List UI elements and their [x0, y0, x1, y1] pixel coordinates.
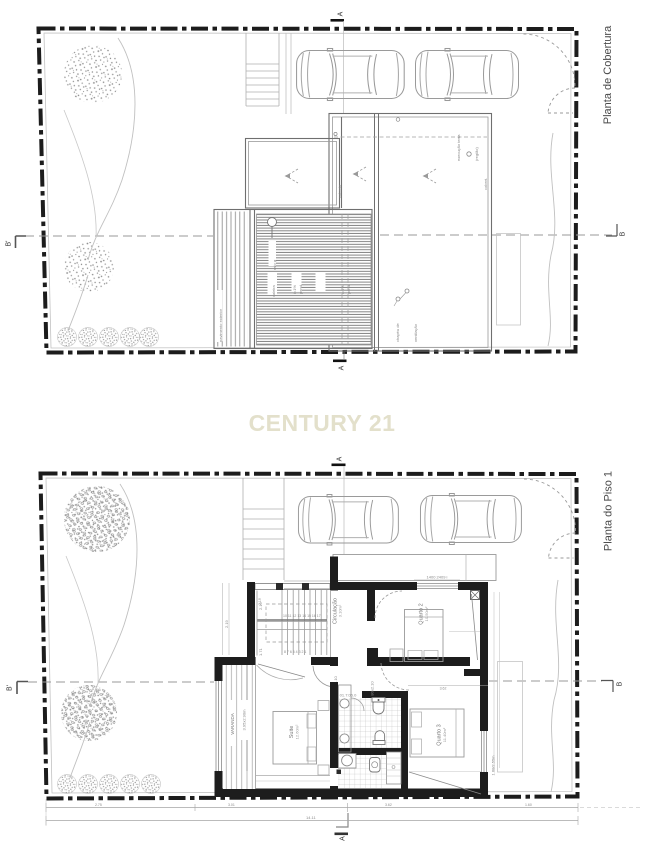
svg-text:3.10m²: 3.10m² — [337, 604, 342, 617]
svg-text:12.60m²: 12.60m² — [294, 724, 299, 739]
svg-text:1.60: 1.60 — [525, 803, 532, 807]
svg-text:2.19: 2.19 — [224, 619, 229, 628]
svg-text:A: A — [336, 456, 343, 461]
svg-text:i=1%: i=1% — [340, 285, 345, 294]
svg-text:A: A — [339, 836, 346, 841]
svg-text:14.11: 14.11 — [306, 815, 316, 820]
svg-text:8 7 6 5 4 3 2 1: 8 7 6 5 4 3 2 1 — [284, 650, 306, 654]
svg-text:A: A — [337, 11, 344, 16]
svg-text:2.75: 2.75 — [95, 803, 102, 807]
svg-text:10.50m²: 10.50m² — [424, 606, 429, 621]
svg-text:A: A — [338, 365, 345, 370]
svg-text:B: B — [619, 231, 626, 236]
svg-text:pend.: pend. — [346, 284, 351, 294]
svg-text:Planta de Cobertura: Planta de Cobertura — [602, 25, 614, 124]
svg-text:ralo φ: ralo φ — [272, 259, 277, 270]
svg-text:pavimento exterior: pavimento exterior — [218, 308, 223, 342]
svg-text:VARANDA: VARANDA — [230, 713, 235, 734]
svg-text:cobert.: cobert. — [483, 178, 488, 190]
svg-text:B': B' — [6, 685, 13, 691]
svg-text:2.19: 2.19 — [258, 598, 262, 605]
svg-text:coberto: coberto — [337, 184, 342, 198]
svg-text:3.62: 3.62 — [385, 803, 392, 807]
svg-text:caleira: caleira — [271, 284, 276, 297]
svg-text:B: B — [616, 681, 623, 686]
svg-text:1.60/2.55m: 1.60/2.55m — [491, 755, 496, 776]
svg-text:execução terra: execução terra — [456, 134, 461, 161]
svg-text:3.01: 3.01 — [228, 803, 235, 807]
svg-text:1.71: 1.71 — [258, 647, 263, 656]
svg-text:Planta do Piso 1: Planta do Piso 1 — [603, 471, 615, 551]
svg-text:80x2.10: 80x2.10 — [370, 681, 375, 696]
svg-text:ventilação: ventilação — [413, 323, 418, 342]
svg-text:(região): (região) — [474, 147, 479, 161]
svg-text:CENTURY 21: CENTURY 21 — [249, 410, 396, 436]
svg-text:1400 2409 i: 1400 2409 i — [427, 575, 448, 580]
svg-text:01.7:05.0: 01.7:05.0 — [340, 693, 357, 698]
svg-text:chapéu de: chapéu de — [395, 323, 400, 342]
svg-text:pend.: pend. — [298, 284, 303, 294]
svg-text:3.95x2.90m: 3.95x2.90m — [241, 709, 246, 731]
svg-text:i=1%: i=1% — [292, 285, 297, 294]
svg-text:11.40m²: 11.40m² — [442, 727, 447, 742]
svg-text:3.62: 3.62 — [440, 687, 447, 691]
svg-text:10 11 12 13 14 15 16 17: 10 11 12 13 14 15 16 17 — [283, 614, 321, 618]
svg-text:B': B' — [5, 240, 12, 246]
